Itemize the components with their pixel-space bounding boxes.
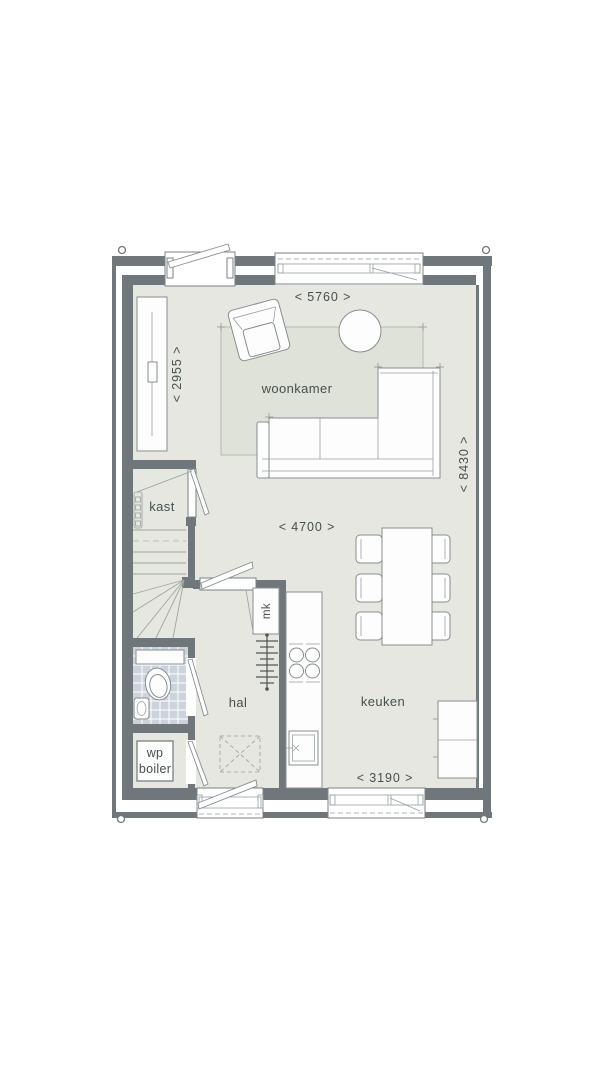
wall-kitchen [279,589,286,788]
dim-bottom: < 3190 > [357,771,414,785]
corner-marker [119,247,126,254]
corner-marker [481,816,488,823]
window-top [275,253,423,284]
dining-table [382,528,432,645]
room-label-hal: hal [229,695,248,710]
wall-toilet-bottom [133,724,195,733]
label-wp: wp [146,746,164,760]
dining-chair [356,612,382,640]
kast-door-hinge-block [186,517,196,526]
dim-middle: < 4700 > [279,520,336,534]
kitchen-counter [286,592,322,788]
window-bottom [328,788,425,818]
dim-left: < 2955 > [170,346,184,403]
toilet-room [133,647,188,724]
wall-stairs-right [188,526,195,583]
wall-toilet-top [133,638,195,647]
dining-chair [356,535,382,563]
cistern-shelf [136,650,184,664]
round-side-table [339,310,381,352]
dim-right: < 8430 > [457,436,471,493]
dining-chair [356,574,382,602]
wall-kast-top [133,460,196,469]
label-boiler: boiler [139,762,171,776]
room-label-keuken: keuken [361,694,405,709]
dining-set [356,528,450,645]
room-label-kast: kast [149,499,174,514]
garden-door [165,244,235,286]
floor-plan: < 5760 > < 2955 > < 4700 > < 8430 > < 31… [0,0,614,1092]
room-label-mk: mk [261,603,273,619]
wardrobe [137,297,167,451]
floor-plan-page: < 5760 > < 2955 > < 4700 > < 8430 > < 31… [0,0,614,1092]
room-label-woonkamer: woonkamer [261,381,333,396]
dim-top: < 5760 > [295,290,352,304]
corner-marker [483,247,490,254]
hand-basin [134,698,149,719]
corner-marker [118,816,125,823]
tall-cabinet [433,701,477,778]
